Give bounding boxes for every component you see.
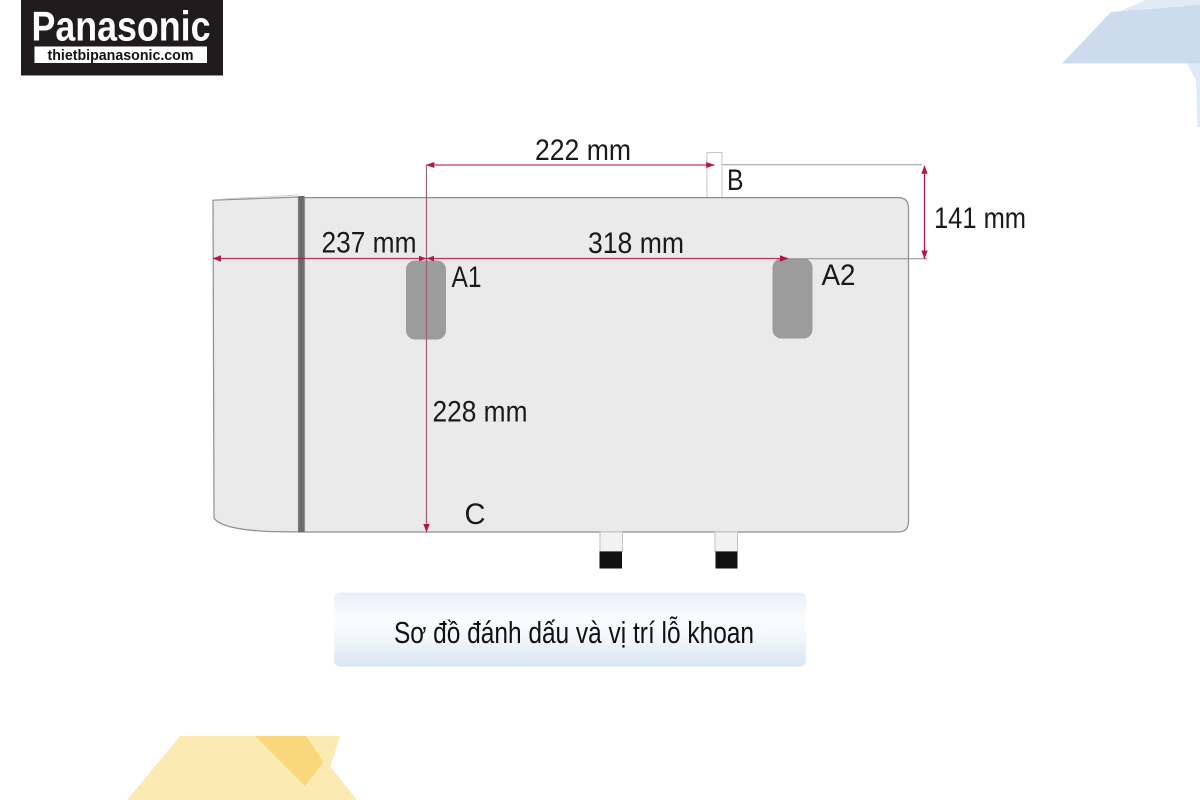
svg-text:C: C [465,498,486,531]
svg-text:Panasonic: Panasonic [32,3,211,50]
svg-text:A2: A2 [822,259,856,292]
svg-text:237 mm: 237 mm [322,227,417,260]
svg-text:318 mm: 318 mm [588,227,684,260]
svg-text:222 mm: 222 mm [535,134,631,167]
svg-text:A1: A1 [452,261,482,294]
svg-text:thietbipanasonic.com: thietbipanasonic.com [48,48,194,64]
svg-text:Sơ đồ đánh dấu và vị trí lỗ kh: Sơ đồ đánh dấu và vị trí lỗ khoan [394,615,754,650]
svg-text:B: B [727,164,744,197]
svg-text:141 mm: 141 mm [934,202,1026,235]
svg-text:228 mm: 228 mm [433,396,528,429]
